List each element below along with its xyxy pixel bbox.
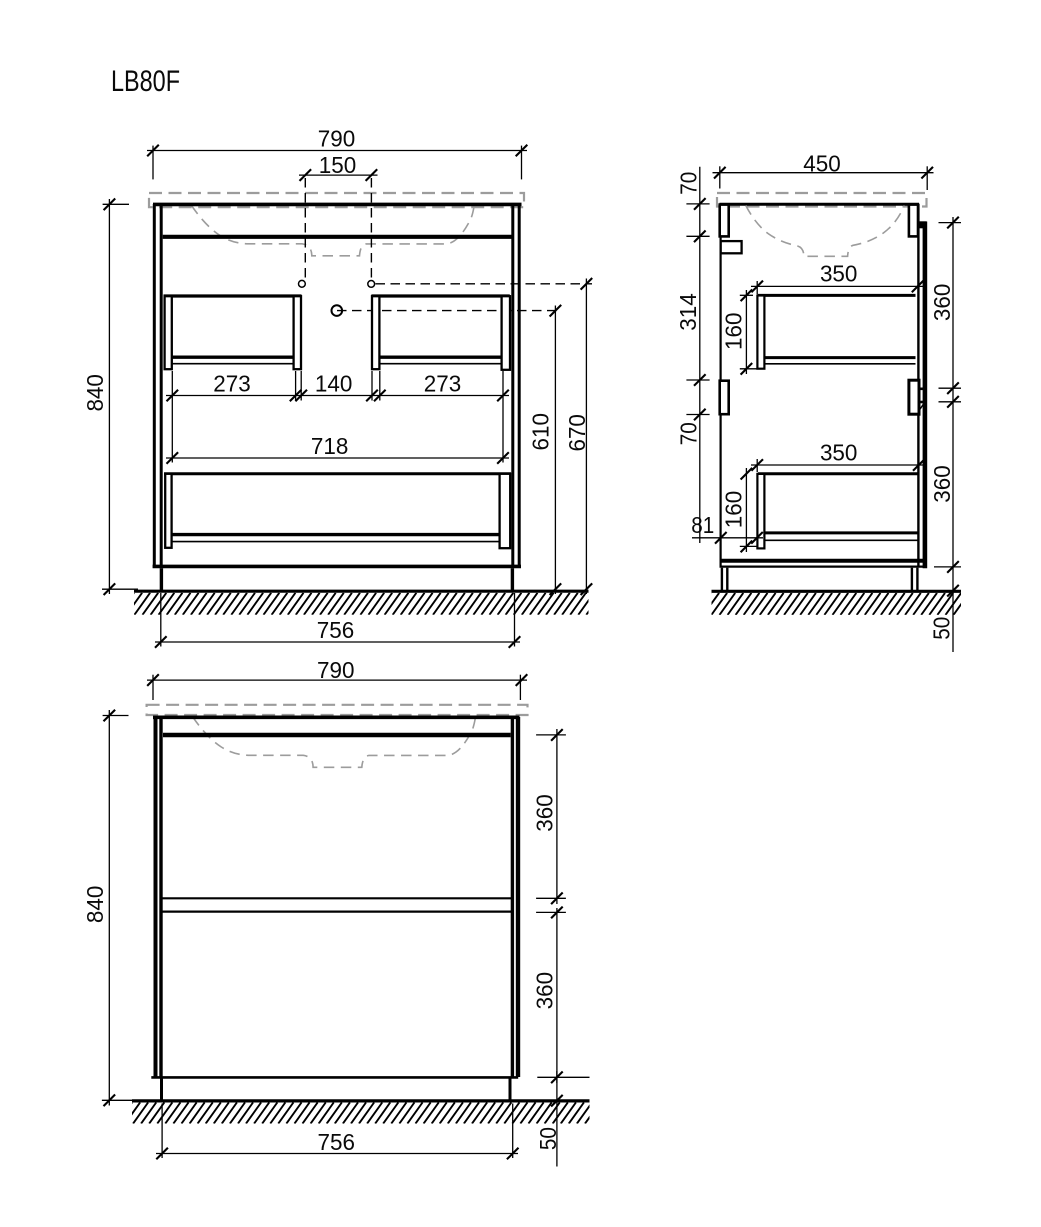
svg-text:81: 81 bbox=[691, 512, 714, 538]
svg-text:450: 450 bbox=[803, 150, 841, 176]
svg-text:70: 70 bbox=[675, 422, 701, 445]
svg-text:70: 70 bbox=[675, 172, 701, 195]
svg-text:160: 160 bbox=[721, 312, 747, 350]
svg-text:360: 360 bbox=[531, 794, 557, 832]
svg-text:840: 840 bbox=[82, 374, 108, 412]
svg-text:140: 140 bbox=[315, 370, 353, 396]
svg-text:50: 50 bbox=[535, 1127, 561, 1150]
svg-text:150: 150 bbox=[319, 152, 357, 178]
svg-text:273: 273 bbox=[424, 370, 462, 396]
svg-text:360: 360 bbox=[929, 284, 955, 322]
svg-text:160: 160 bbox=[721, 491, 747, 529]
svg-text:756: 756 bbox=[317, 617, 355, 643]
svg-text:790: 790 bbox=[318, 125, 356, 151]
svg-text:273: 273 bbox=[213, 370, 251, 396]
svg-text:670: 670 bbox=[564, 414, 590, 452]
svg-text:610: 610 bbox=[527, 413, 553, 451]
svg-text:350: 350 bbox=[820, 439, 858, 465]
svg-text:840: 840 bbox=[82, 886, 108, 924]
svg-text:LB80F: LB80F bbox=[111, 65, 180, 98]
svg-text:50: 50 bbox=[928, 617, 954, 640]
svg-text:360: 360 bbox=[929, 465, 955, 503]
svg-text:718: 718 bbox=[311, 433, 349, 459]
svg-text:360: 360 bbox=[531, 972, 557, 1010]
svg-text:350: 350 bbox=[820, 261, 858, 287]
svg-text:314: 314 bbox=[675, 293, 701, 331]
svg-text:790: 790 bbox=[317, 657, 355, 683]
svg-text:756: 756 bbox=[318, 1129, 356, 1155]
